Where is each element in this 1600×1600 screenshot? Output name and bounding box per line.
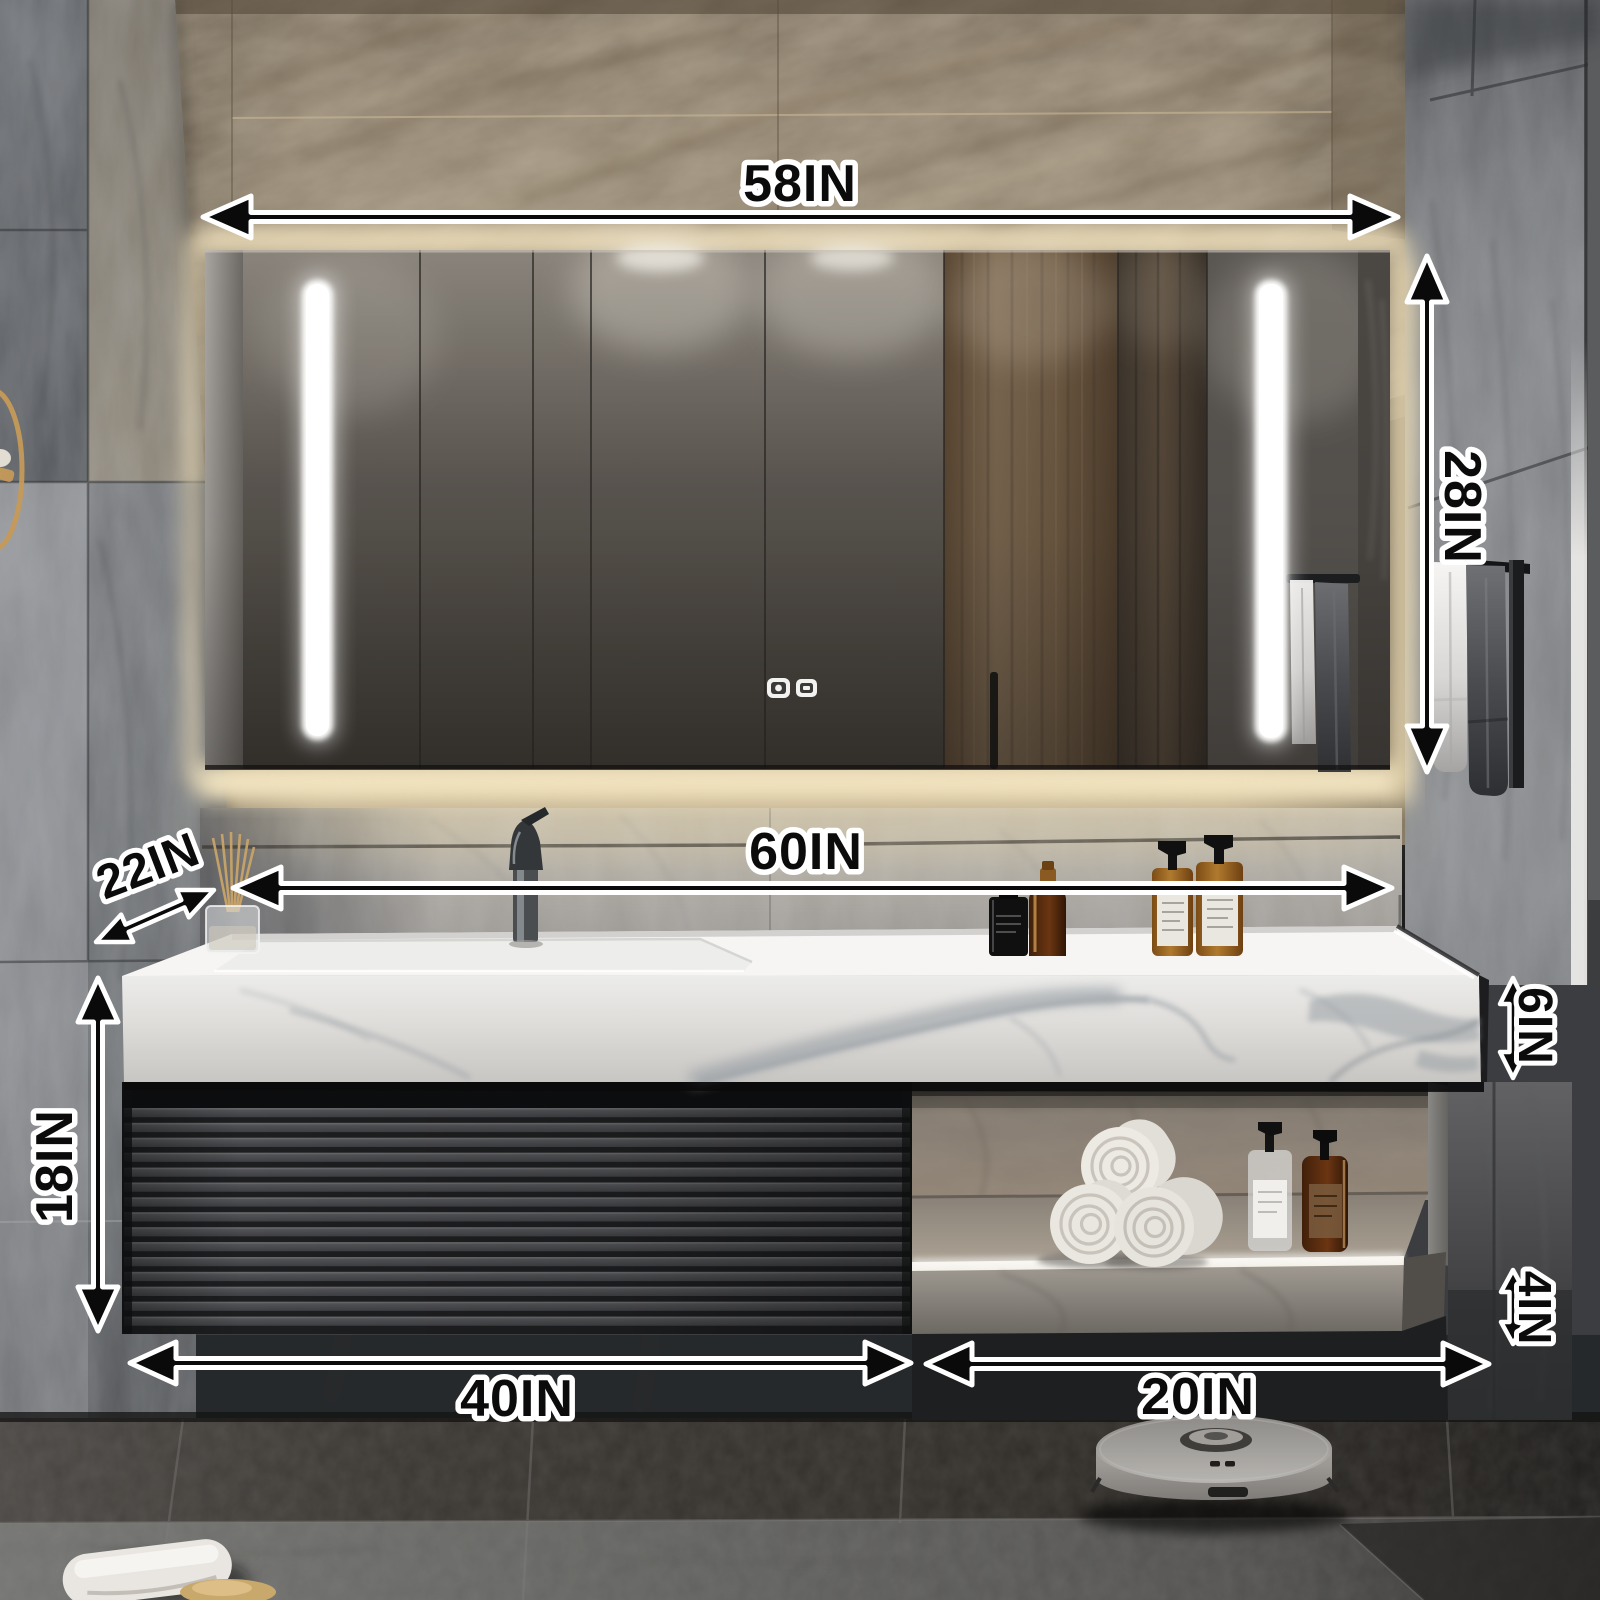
svg-text:20IN: 20IN — [1141, 1368, 1255, 1426]
svg-text:40IN: 40IN — [460, 1370, 574, 1428]
svg-text:60IN: 60IN — [749, 823, 863, 881]
svg-text:6IN: 6IN — [1508, 987, 1561, 1065]
svg-text:18IN: 18IN — [26, 1109, 84, 1223]
svg-text:58IN: 58IN — [743, 155, 857, 213]
svg-text:4IN: 4IN — [1509, 1271, 1561, 1346]
svg-text:28IN: 28IN — [1433, 450, 1491, 564]
